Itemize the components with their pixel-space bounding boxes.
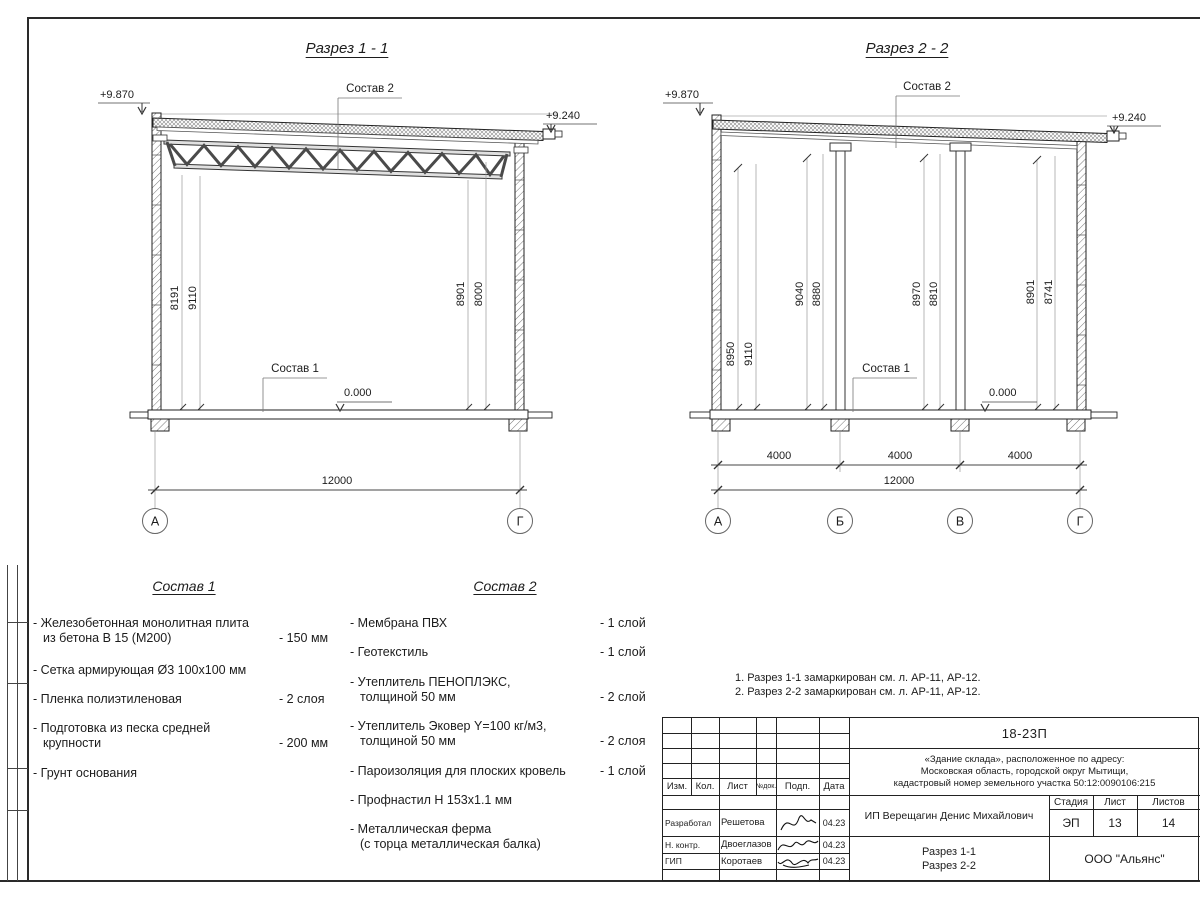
sostav1-title: Состав 1 [33,578,335,594]
footing-right [509,419,527,431]
axis-label: Г [1077,515,1084,529]
svg-text:+9.870: +9.870 [100,89,134,101]
list-item: - Пароизоляция для плоских кровель - 1 с… [350,764,660,779]
list-item: - Профнастил Н 153х1.1 мм [350,793,660,808]
svg-text:Состав 1: Состав 1 [271,363,319,375]
col-list: Лист [719,778,756,795]
row-role: Н. контр. [665,836,719,853]
col-kol: Кол. [691,778,719,795]
sheet-number: 13 [1093,809,1137,836]
footing [1067,419,1085,431]
row-date: 04.23 [819,809,849,836]
callout-floor: Состав 1 [263,363,327,412]
axis-label: А [151,515,160,529]
roof-eave-block [543,129,555,139]
row-name: Решетова [721,809,776,836]
dim-total-label: 12000 [884,475,915,487]
frame-left [27,17,29,881]
company-name: ООО "Альянс" [1049,836,1200,882]
doc-number: 18-23П [849,718,1200,748]
wall-right [515,138,524,415]
stage-label: Стадия [1049,795,1093,809]
list-item: - Железобетонная монолитная плита из бет… [33,616,335,647]
dim-label: 8810 [928,282,940,306]
sostav2-list: Состав 2 - Мембрана ПВХ - 1 слой - Геоте… [350,578,660,867]
svg-text:+9.240: +9.240 [546,110,580,122]
column-b [830,143,851,410]
elevation-mark-floor: 0.000 [981,387,1037,411]
footing [951,419,969,431]
row-name: Двоеглазов [721,836,776,853]
dim-label: 8191 [169,286,181,310]
elevation-mark-floor: 0.000 [336,387,392,411]
row-role: ГИП [665,853,719,869]
footing [712,419,730,431]
col-izm: Изм. [663,778,691,795]
drawing-sheet: Разрез 1 - 1 Разрез 2 - 2 [0,0,1200,900]
signature [775,852,821,870]
dim-label: 9110 [743,342,755,366]
svg-text:Состав 2: Состав 2 [903,81,951,93]
col-ndok: №док. [756,778,776,795]
dim-label: 8901 [1025,280,1037,304]
column-v [950,143,971,410]
axis-label: Б [836,515,844,529]
callout-roof: Состав 2 [896,81,960,148]
dim-label: 9040 [794,282,806,306]
sostav1-list: Состав 1 - Железобетонная монолитная пли… [33,578,335,795]
list-item: - Утеплитель Эковер Y=100 кг/м3, толщино… [350,719,660,750]
elevation-mark-left: +9.870 [663,89,713,115]
row-role: Разработал [665,809,719,836]
dim-label: 8950 [725,342,737,366]
sheets-label: Листов [1137,795,1200,809]
list-item: - Грунт основания [33,766,335,781]
list-item: - Подготовка из песка средней крупности … [33,721,335,752]
dim-span-label: 4000 [888,450,912,462]
dim-span-label: 4000 [767,450,791,462]
list-item: - Сетка армирующая Ø3 100х100 мм [33,663,335,678]
row-date: 04.23 [819,836,849,853]
dim-label: 9110 [187,286,199,310]
sheets-total: 14 [1137,809,1200,836]
callout-floor: Состав 1 [853,363,917,412]
sostav2-title: Состав 2 [350,578,660,594]
stage-value: ЭП [1049,809,1093,836]
col-data: Дата [819,778,849,795]
dim-label: 8741 [1043,280,1055,304]
dim-label: 8880 [811,282,823,306]
section1-drawing: 8191 9110 8901 8000 12000 А Г +9.870 [90,80,600,550]
col-podp: Подп. [776,778,819,795]
row-name: Коротаев [721,853,776,869]
list-item: - Пленка полиэтиленовая - 2 слоя [33,692,335,707]
axis-label: А [714,515,723,529]
axis-label: Г [517,515,524,529]
footing-left [151,419,169,431]
floor-slab [710,410,1091,419]
section2-drawing: 8950 9110 9040 8880 8970 8810 8901 8741 … [655,80,1200,550]
frame-top [27,17,1200,19]
svg-text:0.000: 0.000 [344,387,372,399]
sheet-label: Лист [1093,795,1137,809]
list-item: - Мембрана ПВХ - 1 слой [350,616,660,631]
wall-left [152,113,161,415]
elevation-mark-right: +9.240 [543,110,597,132]
svg-text:Состав 1: Состав 1 [862,363,910,375]
list-item: - Геотекстиль - 1 слой [350,645,660,660]
project-description: «Здание склада», расположенное по адресу… [853,748,1196,795]
client-name: ИП Верещагин Денис Михайлович [849,795,1049,836]
dim-label: 8000 [473,282,485,306]
svg-text:+9.870: +9.870 [665,89,699,101]
title-block: Изм. Кол. Лист №док. Подп. Дата Разработ… [662,717,1199,881]
row-date: 04.23 [819,853,849,869]
dim-total-label: 12000 [322,475,353,487]
drawing-notes: 1. Разрез 1-1 замаркирован см. л. АР-11,… [735,672,1065,699]
elevation-mark-right: +9.240 [1107,112,1161,133]
section1-title: Разрез 1 - 1 [247,40,447,57]
signature [777,810,819,836]
svg-text:Состав 2: Состав 2 [346,83,394,95]
dim-span-label: 4000 [1008,450,1032,462]
footing [831,419,849,431]
svg-text:0.000: 0.000 [989,387,1017,399]
axis-label: В [956,515,964,529]
roof-eave-block [1107,131,1119,141]
list-item: - Металлическая ферма (с торца металличе… [350,822,660,853]
wall-right [1077,140,1086,415]
note-line: 1. Разрез 1-1 замаркирован см. л. АР-11,… [735,672,1065,686]
sheet-title: Разрез 1-1 Разрез 2-2 [849,836,1049,882]
dim-label: 8901 [455,282,467,306]
svg-text:+9.240: +9.240 [1112,112,1146,124]
list-item: - Утеплитель ПЕНОПЛЭКС, толщиной 50 мм -… [350,675,660,706]
note-line: 2. Разрез 2-2 замаркирован см. л. АР-11,… [735,686,1065,700]
floor-slab [148,410,528,419]
dim-label: 8970 [911,282,923,306]
section2-title: Разрез 2 - 2 [807,40,1007,57]
elevation-mark-left: +9.870 [98,89,150,114]
